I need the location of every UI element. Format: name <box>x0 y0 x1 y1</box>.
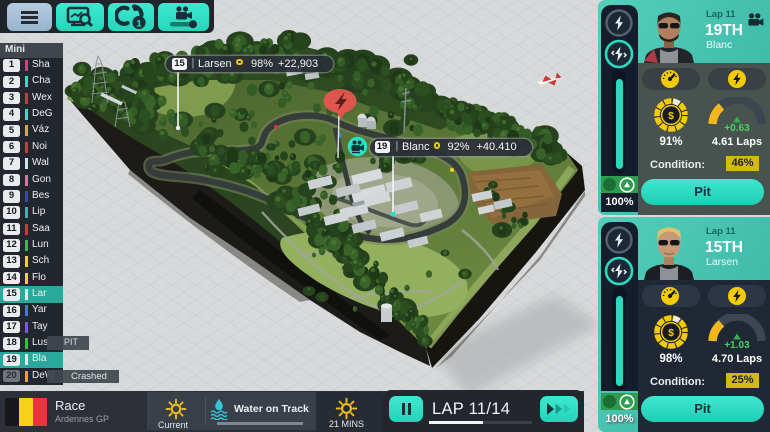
svg-text:1: 1 <box>136 18 142 29</box>
svg-text:$: $ <box>668 110 674 122</box>
svg-text:$: $ <box>668 327 674 339</box>
